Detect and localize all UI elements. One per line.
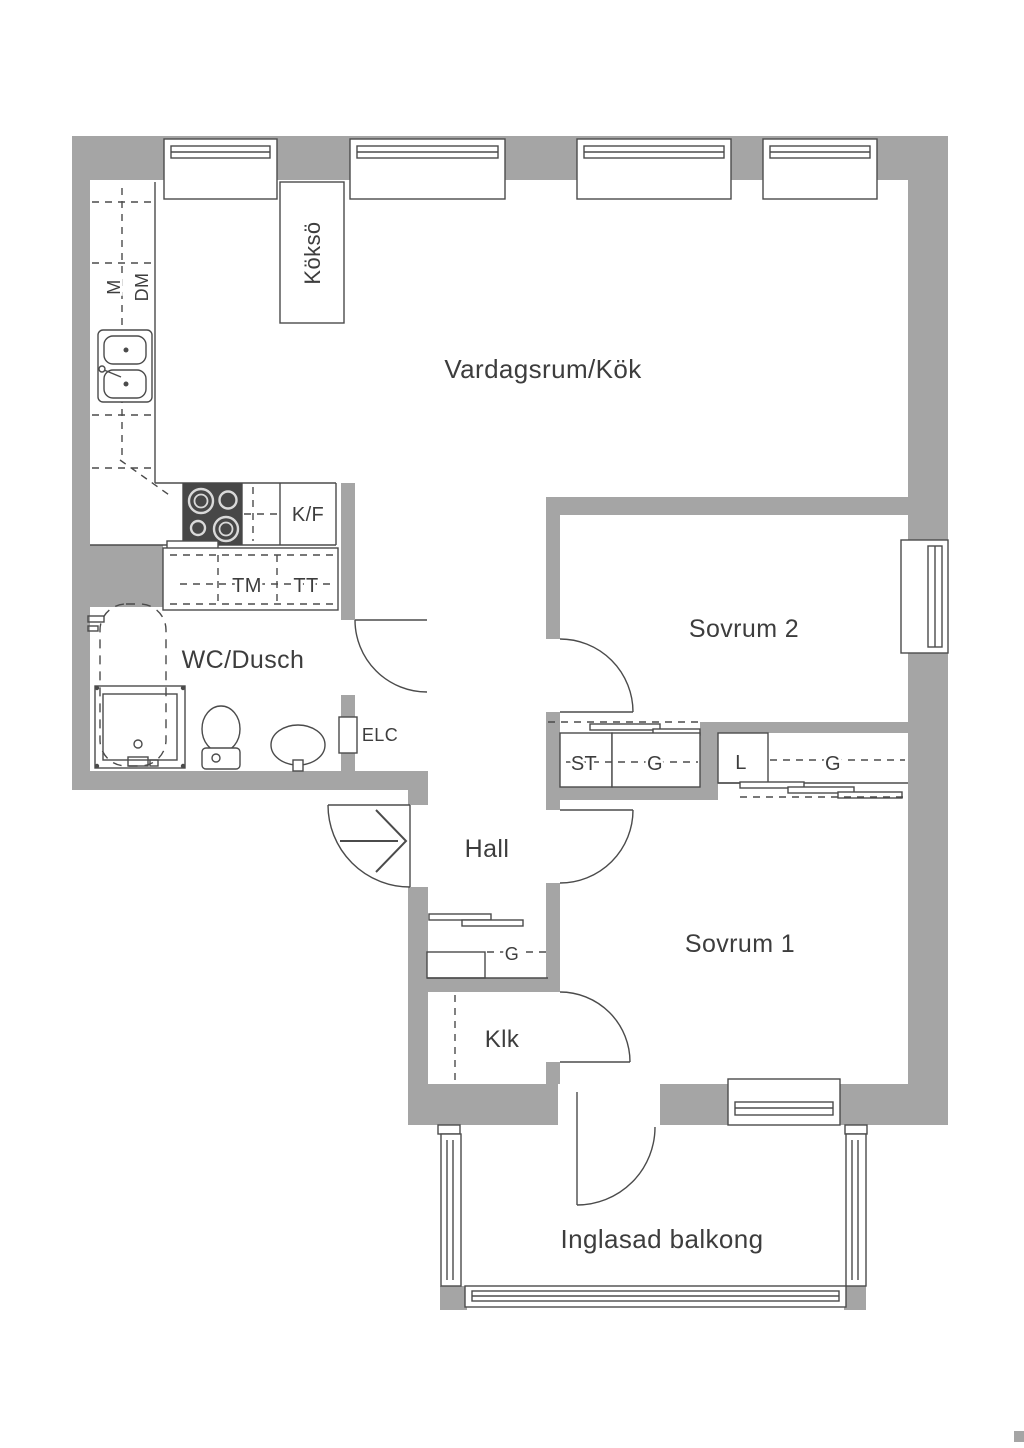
label-microwave: M xyxy=(104,279,124,294)
label-tumble-dryer: TT xyxy=(293,575,318,597)
label-wardrobe-bedroom1: G xyxy=(825,753,841,775)
floorplan-page: Vardagsrum/Kök Sovrum 2 Sovrum 1 WC/Dusc… xyxy=(0,0,1024,1448)
wall-segment xyxy=(700,722,718,800)
wall-segment xyxy=(546,515,560,639)
glazing-cap xyxy=(438,1125,460,1134)
wall-segment xyxy=(408,1084,948,1125)
window xyxy=(164,139,277,199)
wall-segment xyxy=(546,883,560,992)
label-cleaning-closet: ST xyxy=(571,753,597,775)
wall-segment xyxy=(420,978,560,992)
corner-mark xyxy=(1014,1431,1024,1442)
wall-segment xyxy=(72,180,90,790)
label-kitchen-island: Köksö xyxy=(300,221,325,284)
stove xyxy=(183,483,242,545)
glazing-left xyxy=(441,1134,461,1286)
entry-door xyxy=(328,805,410,887)
room-label-walk-in-closet: Klk xyxy=(485,1026,520,1053)
kitchen-sink xyxy=(98,330,152,402)
glazing-right xyxy=(846,1134,866,1286)
window-bedroom1 xyxy=(728,1079,840,1125)
walls xyxy=(72,136,1024,1442)
label-wardrobe-hall: G xyxy=(505,944,519,964)
room-label-balcony: Inglasad balkong xyxy=(561,1224,764,1254)
wall-segment xyxy=(72,771,428,790)
label-wardrobe-bedroom2: G xyxy=(647,753,663,775)
window xyxy=(350,139,505,199)
bathroom-fittings xyxy=(88,604,427,771)
balcony-post xyxy=(844,1286,866,1310)
wall-segment xyxy=(546,712,560,787)
bedroom1-door xyxy=(560,810,633,883)
wall-segment-shaft xyxy=(88,545,163,607)
room-label-bedroom2: Sovrum 2 xyxy=(689,615,799,643)
wall-segment xyxy=(408,790,428,805)
balcony-glazing xyxy=(438,1125,867,1307)
room-label-hall: Hall xyxy=(465,835,510,863)
glazing-bottom xyxy=(465,1286,846,1307)
bathroom-door xyxy=(355,620,427,692)
label-electrical-cabinet: ELC xyxy=(362,725,398,745)
window-bedroom2 xyxy=(901,540,948,653)
bathtub xyxy=(100,604,166,766)
electrical-cabinet-box xyxy=(339,717,357,753)
wall-segment xyxy=(546,787,718,800)
label-washing-machine: TM xyxy=(232,575,262,597)
window xyxy=(763,139,877,199)
bedroom2-door xyxy=(560,639,633,712)
floorplan-drawing: Vardagsrum/Kök Sovrum 2 Sovrum 1 WC/Dusc… xyxy=(0,0,1024,1448)
label-fridge-freezer: K/F xyxy=(292,504,324,526)
balcony-door-opening xyxy=(558,1084,660,1126)
room-label-bathroom: WC/Dusch xyxy=(182,646,305,674)
toilet xyxy=(202,706,240,769)
bathroom-sink xyxy=(271,725,325,771)
label-linen-closet: L xyxy=(735,752,747,774)
walk-in-closet-door xyxy=(560,992,630,1062)
glazing-cap xyxy=(845,1125,867,1134)
window xyxy=(577,139,731,199)
wall-segment xyxy=(718,722,908,733)
closet-hall xyxy=(427,914,548,978)
label-dishwasher: DM xyxy=(132,273,152,302)
wall-segment xyxy=(546,497,908,515)
shower xyxy=(95,686,185,768)
balcony-post xyxy=(440,1286,467,1310)
entry-door-opening xyxy=(405,805,431,887)
valve-marks xyxy=(88,616,104,631)
room-label-bedroom1: Sovrum 1 xyxy=(685,930,795,958)
room-label-living: Vardagsrum/Kök xyxy=(444,354,642,384)
wall-segment xyxy=(546,1062,560,1088)
wall-segment xyxy=(341,483,355,620)
wall-segment xyxy=(546,800,560,810)
